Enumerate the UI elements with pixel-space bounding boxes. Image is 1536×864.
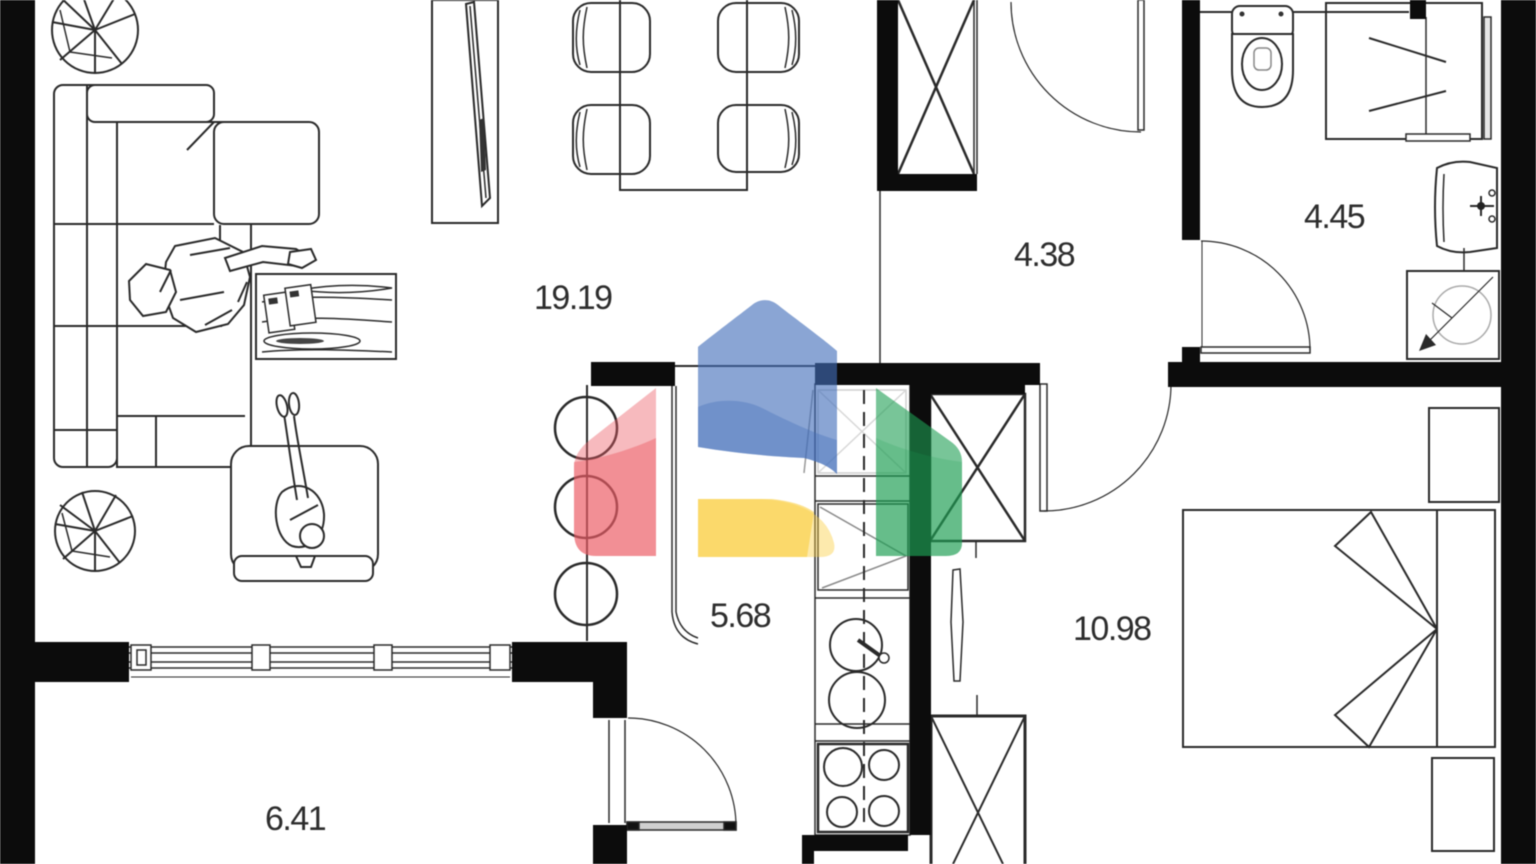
- svg-text:4.38: 4.38: [1014, 236, 1075, 274]
- svg-text:10.98: 10.98: [1073, 610, 1151, 648]
- svg-text:4.45: 4.45: [1304, 198, 1365, 236]
- svg-text:5.68: 5.68: [710, 597, 771, 635]
- svg-text:19.19: 19.19: [534, 279, 612, 317]
- svg-text:6.41: 6.41: [265, 800, 326, 838]
